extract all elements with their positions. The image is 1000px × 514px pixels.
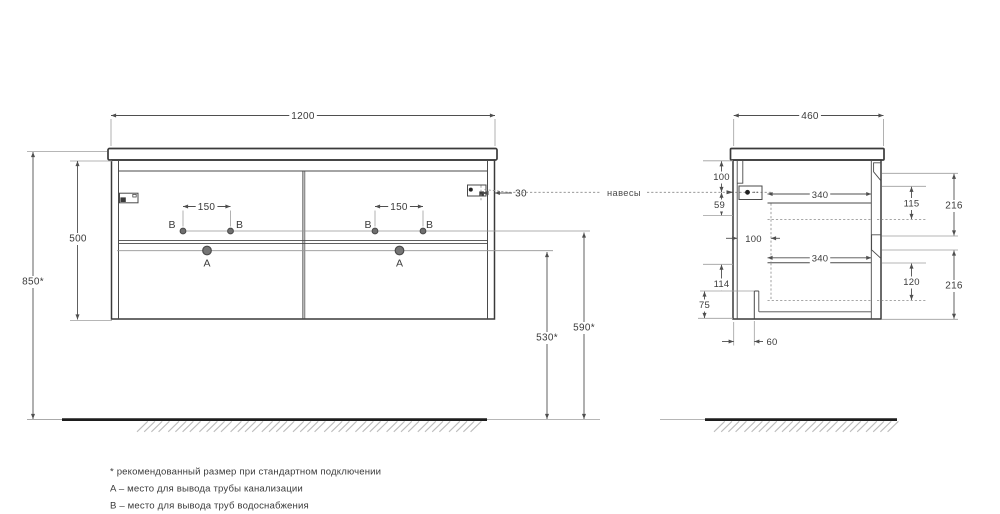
- hanger-bracket-left: [120, 193, 139, 203]
- label-b-4: B: [426, 219, 433, 231]
- front-view-dimensions: 1200 500 850* 150 150 30 530* 590*: [20, 111, 597, 420]
- side-groove-top: [874, 163, 881, 181]
- dim-hole-spacing-left: 150: [198, 202, 216, 213]
- hole-b-1: [180, 228, 186, 234]
- hangers-connector: навесы: [485, 188, 773, 198]
- hanger-bracket-right: [468, 185, 487, 196]
- dim-front-panel-lower: 216: [945, 281, 963, 292]
- side-countertop: [731, 149, 885, 161]
- dim-front-height: 500: [69, 234, 87, 245]
- side-groove-middle: [872, 235, 881, 259]
- technical-drawing-page: B B B B A A 1200 500 850* 150 150: [0, 0, 1000, 514]
- hole-b-2: [228, 228, 234, 234]
- dim-back-gap: 100: [745, 234, 761, 245]
- footnote-recommended: * рекомендованный размер при стандартном…: [110, 467, 381, 478]
- dim-hanger-offset: 30: [515, 189, 527, 200]
- dim-bottom-gap: 114: [714, 279, 730, 290]
- vanity-dimension-drawing: B B B B A A 1200 500 850* 150 150: [0, 0, 1000, 514]
- side-back-rail: [737, 160, 743, 183]
- dim-hanger-drop: 59: [714, 200, 725, 211]
- dim-top-offset: 100: [713, 172, 729, 183]
- label-b-1: B: [168, 219, 175, 231]
- footnotes: * рекомендованный размер при стандартном…: [110, 467, 381, 512]
- dim-recess-height: 75: [699, 300, 710, 311]
- front-countertop: [108, 149, 497, 161]
- dim-drawer-depth-upper: 340: [812, 190, 828, 201]
- label-b-2: B: [236, 219, 243, 231]
- label-a-2: A: [396, 258, 403, 270]
- floor: [27, 420, 898, 432]
- dim-recess-depth: 60: [767, 337, 778, 348]
- hangers-label: навесы: [607, 188, 641, 198]
- dim-drain-height: 530*: [536, 333, 558, 344]
- label-a-1: A: [203, 258, 210, 270]
- hole-a-2: [395, 246, 404, 255]
- dim-supply-height: 590*: [573, 323, 595, 334]
- dim-front-width: 1200: [291, 111, 315, 122]
- side-drawer-upper: [768, 203, 872, 220]
- footnote-a: A – место для вывода трубы канализации: [110, 484, 303, 495]
- dim-total-height: 850*: [22, 277, 44, 288]
- dim-drawer-inner-bottom: 120: [903, 277, 919, 288]
- front-view: B B B B A A: [108, 149, 590, 320]
- label-b-3: B: [364, 219, 371, 231]
- dim-depth: 460: [801, 111, 819, 122]
- side-bottom-recess: [754, 291, 759, 319]
- floor-hatching-left: [137, 421, 481, 432]
- dim-front-panel-upper: 216: [945, 201, 963, 212]
- footnote-b: B – место для вывода труб водоснабжения: [110, 501, 309, 512]
- dim-drawer-depth-lower: 340: [812, 253, 828, 264]
- hole-b-3: [372, 228, 378, 234]
- floor-hatching-right: [714, 421, 898, 432]
- hole-a-1: [203, 246, 212, 255]
- hanger-bracket-side: [739, 186, 762, 200]
- dim-drawer-inner-top: 115: [904, 199, 920, 210]
- dim-hole-spacing-right: 150: [390, 202, 408, 213]
